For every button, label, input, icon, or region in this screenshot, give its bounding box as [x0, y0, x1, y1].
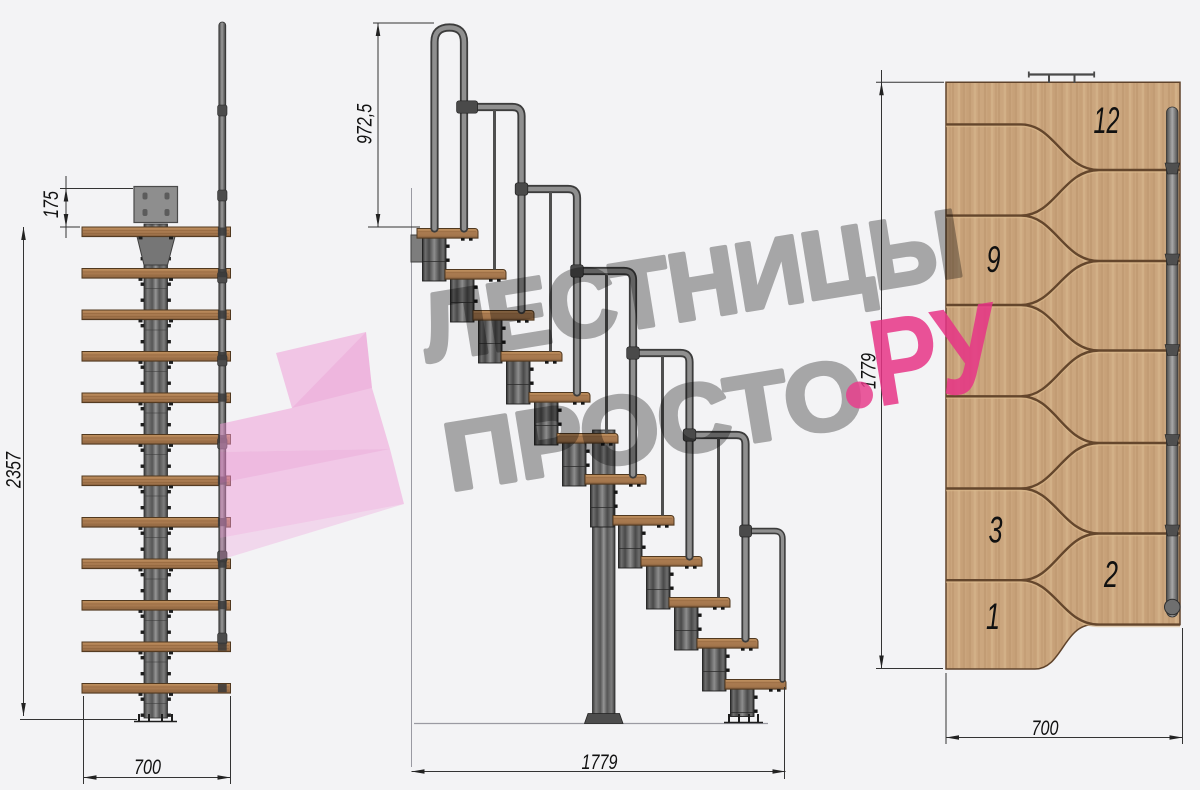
svg-text:1: 1: [986, 595, 1000, 637]
svg-text:2357: 2357: [3, 451, 27, 489]
svg-text:9: 9: [987, 238, 1001, 280]
svg-text:3: 3: [989, 508, 1003, 550]
svg-text:700: 700: [1032, 717, 1059, 741]
svg-text:2: 2: [1103, 553, 1118, 595]
svg-text:12: 12: [1094, 100, 1120, 142]
svg-text:972,5: 972,5: [354, 103, 378, 144]
svg-text:1779: 1779: [582, 751, 618, 775]
svg-text:175: 175: [40, 191, 64, 218]
svg-text:700: 700: [134, 756, 161, 780]
svg-text:РУ: РУ: [859, 276, 1011, 434]
